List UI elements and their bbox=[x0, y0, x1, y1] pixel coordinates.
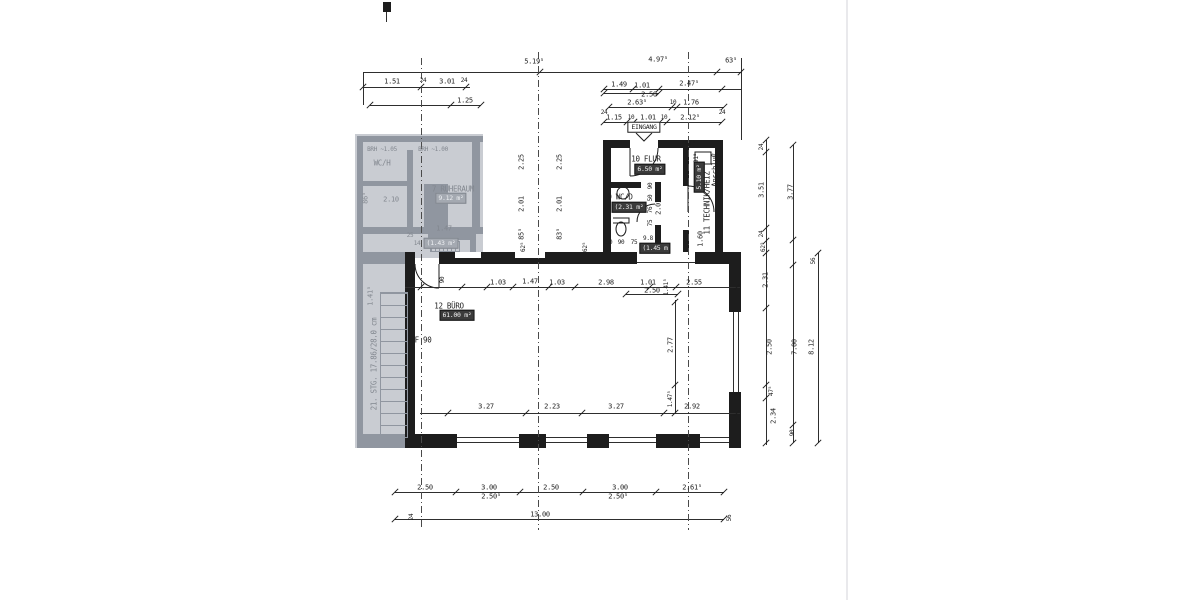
dim-label: 62⁵ bbox=[583, 242, 589, 252]
faded-wall bbox=[407, 150, 413, 232]
dim-label: 3.27 bbox=[478, 404, 494, 411]
dim-label: 47⁵ bbox=[769, 386, 775, 396]
dim-label: 10 bbox=[661, 115, 668, 121]
drawing-line bbox=[700, 437, 729, 438]
dim-label: 1.60 bbox=[698, 231, 705, 247]
dim-label: 1.49 bbox=[611, 82, 627, 89]
floorplan-overlay bbox=[0, 0, 1200, 600]
dim-label: 2.12⁵ bbox=[680, 115, 700, 122]
dim-label: 2.50⁵ bbox=[608, 494, 628, 501]
drawing-line bbox=[386, 12, 387, 22]
wall-segment bbox=[383, 2, 391, 12]
dim-label: 3.77 bbox=[788, 184, 795, 200]
dim-label: 10 bbox=[628, 115, 635, 121]
room-label: WC/H bbox=[374, 159, 391, 167]
wall-segment bbox=[729, 434, 741, 448]
faded-wall bbox=[357, 227, 483, 234]
dim-label: 56 bbox=[727, 515, 733, 522]
dim-label: 50 bbox=[606, 240, 613, 246]
dim-label: 24 bbox=[719, 110, 726, 116]
dim-label: 2.01 bbox=[656, 199, 663, 215]
dim-label: 24 bbox=[759, 231, 765, 238]
dim-label: 14 bbox=[414, 241, 421, 247]
axis-centerline bbox=[688, 52, 689, 530]
dim-label: 2.92 bbox=[684, 404, 700, 411]
dim-label: 25 bbox=[407, 233, 414, 239]
faded-wall bbox=[357, 136, 483, 142]
drawing-line bbox=[395, 492, 724, 493]
dim-label: 62⁵ bbox=[521, 242, 527, 252]
drawing-line bbox=[546, 442, 587, 443]
dim-label: 90 bbox=[440, 277, 446, 284]
dim-label: 1.47 bbox=[522, 279, 538, 286]
dim-label: 91⁵ bbox=[694, 153, 700, 163]
wall-segment bbox=[519, 434, 546, 448]
scan-edge bbox=[846, 0, 848, 600]
floorplan-sheet: 5.19⁵4.97⁵63⁵1.513.0124241.251.491.012.4… bbox=[0, 0, 1200, 600]
dim-label: 90 bbox=[618, 240, 625, 246]
dim-label: 3.51 bbox=[759, 182, 766, 198]
dim-label: 67⁵ bbox=[685, 141, 695, 147]
dim-label: 2.61⁵ bbox=[682, 485, 702, 492]
drawing-line bbox=[457, 442, 519, 443]
room-label: F 90 bbox=[415, 336, 432, 344]
dim-label: 2.23 bbox=[544, 404, 560, 411]
drawing-line bbox=[363, 72, 364, 105]
dim-label: 1.41⁵ bbox=[368, 286, 375, 306]
wall-opening bbox=[515, 252, 545, 258]
dim-label: 10 bbox=[670, 100, 677, 106]
dim-label: 3.00 bbox=[612, 485, 628, 492]
dim-label: 2.01 bbox=[557, 196, 564, 212]
door-arc bbox=[415, 264, 439, 288]
room-label: 7 RUHERAUM bbox=[432, 185, 474, 193]
drawing-line bbox=[546, 437, 587, 438]
dim-label: 2.77 bbox=[668, 337, 675, 353]
wall-opening bbox=[455, 252, 481, 258]
dim-label: 2.01 bbox=[519, 196, 526, 212]
dim-label: 2.50 bbox=[417, 485, 433, 492]
area-box: 5.10 m² bbox=[694, 161, 705, 192]
dim-label: BRH ~1.05 bbox=[367, 147, 397, 153]
drawing-line bbox=[675, 300, 676, 413]
drawing-line bbox=[766, 140, 767, 445]
dim-label: 1.01 bbox=[634, 83, 650, 90]
dim-label: 3.00 bbox=[481, 485, 497, 492]
dim-label: 1.03 bbox=[490, 280, 506, 287]
dim-label: 7.00 bbox=[792, 339, 799, 355]
room-label: 12 BÜRO bbox=[434, 302, 464, 310]
dim-label: 2.25 bbox=[557, 154, 564, 170]
dim-label: 8.12 bbox=[809, 339, 816, 355]
dim-label: 90 bbox=[648, 183, 654, 190]
drawing-line bbox=[457, 437, 519, 438]
dim-label: 50 bbox=[715, 240, 722, 246]
dim-label: 4.97⁵ bbox=[648, 57, 668, 64]
dim-label: 2.50 bbox=[641, 92, 657, 99]
axis-centerline bbox=[538, 52, 539, 530]
dim-label: 85⁵ bbox=[519, 228, 526, 240]
room-label: Anschluß bbox=[711, 153, 719, 187]
dim-label: 2.50 bbox=[543, 485, 559, 492]
dim-label: 2.31 bbox=[763, 272, 770, 288]
wall-segment bbox=[405, 252, 415, 264]
entrance-arrow-icon bbox=[636, 133, 652, 141]
dim-label: 75 bbox=[648, 220, 654, 227]
area-box: 9.12 m² bbox=[435, 193, 466, 204]
dim-label: 2.47⁵ bbox=[679, 81, 699, 88]
drawing-line bbox=[609, 437, 656, 438]
dim-label: BRH ~1.00 bbox=[418, 147, 448, 153]
dim-label: 24 bbox=[420, 78, 427, 84]
drawing-line bbox=[733, 312, 734, 392]
entrance-label: EINGANG bbox=[627, 122, 660, 133]
dim-label: 2.50 bbox=[644, 288, 660, 295]
wall-segment bbox=[405, 434, 457, 448]
room-label: 10 FLUR bbox=[631, 155, 661, 163]
dim-label: 2.10 bbox=[383, 197, 399, 204]
dim-label: 1.47 bbox=[436, 226, 452, 233]
dim-label: 83⁵ bbox=[557, 228, 564, 240]
drawing-line bbox=[637, 262, 695, 263]
area-box: (1.43 m² bbox=[424, 238, 459, 249]
area-box: (1.45 m bbox=[639, 243, 670, 254]
dim-label: 76 bbox=[648, 207, 654, 214]
dim-label: 1.25 bbox=[457, 98, 473, 105]
drawing-line bbox=[363, 72, 742, 73]
dim-label: 2.34 bbox=[771, 408, 778, 424]
drawing-line bbox=[609, 442, 656, 443]
dim-label: 2.98 bbox=[598, 280, 614, 287]
dim-label: 1.01 bbox=[640, 280, 656, 287]
dim-label: 56 bbox=[811, 258, 817, 265]
drawing-line bbox=[370, 105, 481, 106]
drawing-line bbox=[738, 312, 739, 392]
wall-segment bbox=[587, 434, 609, 448]
dim-label: 75 bbox=[631, 240, 638, 246]
dim-label: 90 bbox=[790, 430, 796, 437]
faded-wall bbox=[357, 258, 363, 434]
dim-label: 9.8 bbox=[643, 236, 653, 242]
room-label: 9 WC/D bbox=[607, 193, 632, 201]
area-box: 61.00 m² bbox=[440, 310, 475, 321]
dim-label: 2.25 bbox=[519, 154, 526, 170]
dim-label: 24 bbox=[759, 144, 765, 151]
dim-label: 5.19⁵ bbox=[524, 59, 544, 66]
dim-label: 2.55 bbox=[686, 280, 702, 287]
dim-label: 62⁵ bbox=[761, 242, 767, 252]
dim-label: 3.01 bbox=[439, 79, 455, 86]
staircase bbox=[380, 292, 408, 438]
dim-label: 2.63⁵ bbox=[627, 100, 647, 107]
drawing-line bbox=[818, 253, 819, 443]
dim-label: 1.51 bbox=[384, 79, 400, 86]
dim-label: 3.27 bbox=[608, 404, 624, 411]
dim-label: 1.15 bbox=[606, 115, 622, 122]
dim-label: 1.76 bbox=[683, 100, 699, 107]
drawing-line bbox=[604, 122, 722, 123]
dim-label: 2.50 bbox=[767, 339, 774, 355]
dim-label: 24 bbox=[461, 78, 468, 84]
dim-label: .68 bbox=[405, 278, 415, 284]
dim-label: 1.01 bbox=[640, 115, 656, 122]
dim-label: 13.00 bbox=[530, 512, 550, 519]
dim-label: 24 bbox=[409, 514, 415, 521]
dim-label: 63⁵ bbox=[725, 58, 737, 65]
faded-wall bbox=[357, 252, 405, 264]
drawing-line bbox=[395, 519, 724, 520]
area-box: (2.31 m² bbox=[612, 202, 647, 213]
drawing-line bbox=[700, 442, 729, 443]
dim-label: 1.41⁵ bbox=[664, 279, 670, 296]
drawing-line bbox=[609, 107, 724, 108]
dim-label: 1.03 bbox=[549, 280, 565, 287]
axis-centerline bbox=[421, 58, 422, 530]
room-label: 11 TECHNIK/HEIZ bbox=[703, 171, 711, 234]
wall-segment bbox=[611, 182, 641, 188]
room-label: 21. STG. 17.86/28.0 cm bbox=[370, 318, 378, 411]
toilet-icon bbox=[616, 222, 626, 236]
drawing-line bbox=[363, 87, 470, 88]
dim-label: 2.50⁵ bbox=[481, 494, 501, 501]
wall-segment bbox=[656, 434, 700, 448]
area-box: 6.50 m² bbox=[634, 164, 665, 175]
wall-segment bbox=[729, 252, 741, 312]
dim-label: 24 bbox=[601, 110, 608, 116]
dim-label: 1.47⁵ bbox=[668, 391, 674, 408]
dim-label: 86⁵ bbox=[363, 192, 370, 204]
dim-label: 50 bbox=[648, 195, 654, 202]
faded-wall bbox=[357, 181, 413, 186]
